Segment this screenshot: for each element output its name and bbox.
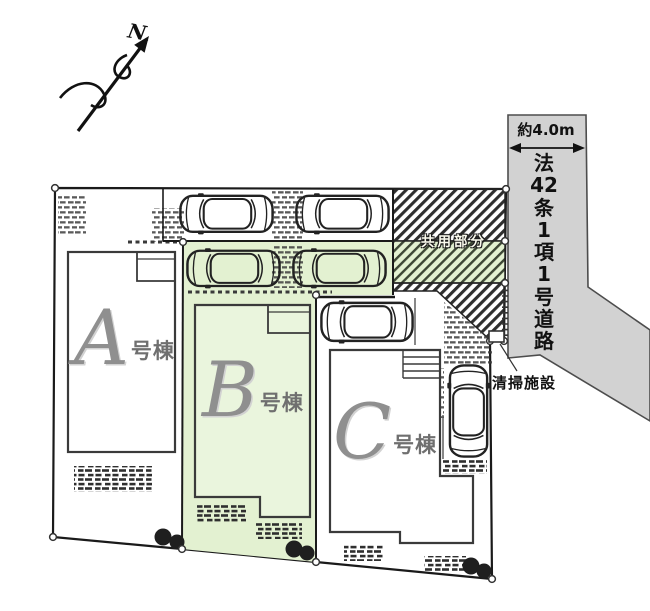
building-a-label: A 号棟 (74, 306, 175, 371)
common-area-label: 共用部分 (405, 230, 503, 250)
road-name-char: 1 (537, 263, 551, 285)
site-plan: N 約4.0m 法 42 条 1 項 1 号 道 路 共用部分 清掃施設 A 号… (0, 0, 650, 611)
road-name-char: 項 (534, 241, 554, 263)
building-c-label: C 号棟 (333, 400, 437, 465)
building-b-label: B 号棟 (202, 358, 304, 423)
road-name-char: 1 (537, 219, 551, 241)
road-name-char: 42 (530, 174, 558, 196)
north-arrow-icon (60, 36, 149, 131)
building-a-suffix: 号棟 (131, 335, 175, 371)
building-a-letter: A (74, 306, 129, 371)
road-name-char: 路 (534, 330, 554, 352)
road-name-label: 法 42 条 1 項 1 号 道 路 (526, 152, 562, 353)
road-name-char: 法 (534, 152, 554, 174)
building-b-suffix: 号棟 (260, 387, 304, 423)
road-width-label: 約4.0m (505, 119, 587, 140)
building-c-suffix: 号棟 (393, 429, 437, 465)
road-name-char: 条 (534, 197, 554, 219)
road-name-char: 道 (534, 308, 554, 330)
building-c-letter: C (333, 400, 391, 465)
road-name-char: 号 (534, 286, 554, 308)
cleaning-facility-label: 清掃施設 (492, 372, 556, 393)
building-b-letter: B (202, 358, 258, 423)
